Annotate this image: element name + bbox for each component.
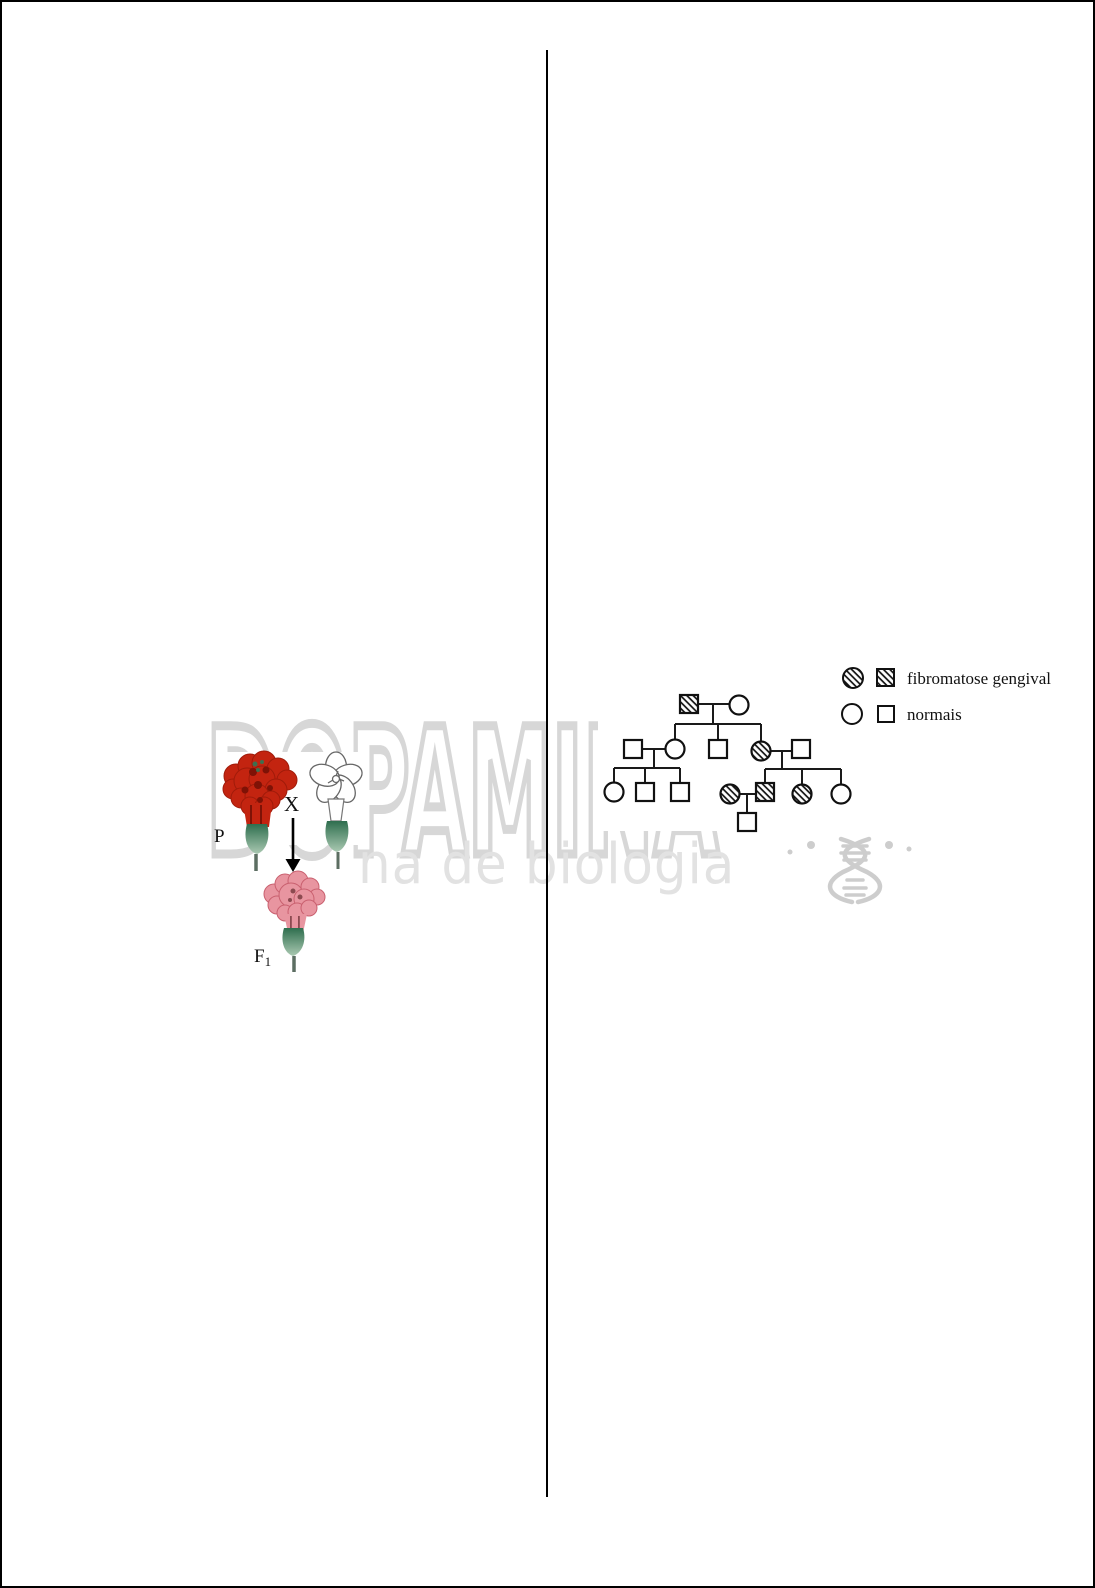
flower-figure-background (218, 752, 364, 845)
pedigree-node-II-3 (709, 740, 727, 758)
pedigree-node-III-3 (671, 783, 689, 801)
pedigree-node-III-2 (636, 783, 654, 801)
pedigree-node-I-2 (730, 696, 749, 715)
pedigree-node-IV-1 (738, 813, 756, 831)
legend-normal-female-icon (842, 704, 862, 724)
f1-generation-label: F1 (254, 946, 271, 969)
pedigree-nodes (605, 695, 851, 831)
pedigree-node-II-1 (624, 740, 642, 758)
pedigree-figure: fibromatose gengival normais (590, 640, 1070, 850)
pedigree-node-III-5 (756, 783, 774, 801)
pedigree-node-II-4 (752, 742, 771, 761)
pedigree-node-III-1 (605, 783, 624, 802)
pink-flower-calyx (282, 928, 304, 956)
pedigree-node-III-6 (793, 785, 812, 804)
pedigree-legend: fibromatose gengival normais (842, 668, 1051, 724)
pedigree-node-II-2 (666, 740, 685, 759)
legend-normal-male-icon (878, 706, 894, 722)
pedigree-node-III-4 (721, 785, 740, 804)
legend-affected-female-icon (843, 668, 863, 688)
pedigree-node-II-5 (792, 740, 810, 758)
legend-affected-male-icon (877, 669, 894, 686)
legend-normal-label: normais (907, 705, 962, 724)
pedigree-node-III-7 (832, 785, 851, 804)
legend-affected-label: fibromatose gengival (907, 669, 1051, 688)
pedigree-node-I-1 (680, 695, 698, 713)
column-divider (546, 50, 548, 1497)
